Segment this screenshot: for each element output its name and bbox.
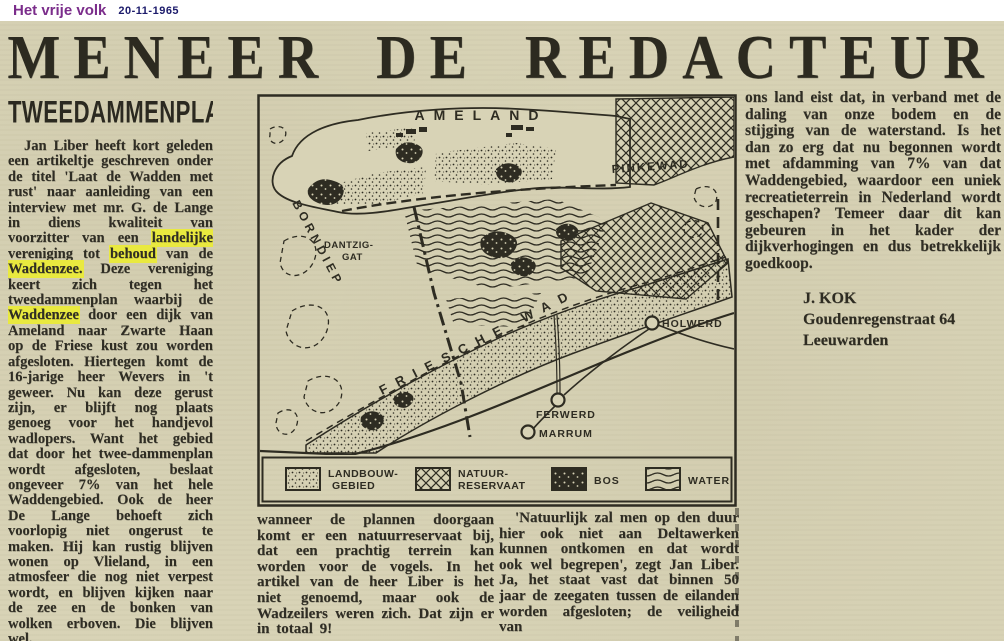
clipping-date: 20-11-1965 <box>118 5 179 17</box>
search-highlight: Waddenzee. <box>8 261 83 277</box>
legend-label: GEBIED <box>332 480 375 492</box>
masthead-bar: Het vrije volk 20-11-1965 <box>0 0 1004 21</box>
map-drawing: AMELAND PINKEWAD BORNDIEP DANTZIG- GAT F… <box>260 97 734 455</box>
page-headline: MENEER DE REDACTEUR <box>0 22 1004 94</box>
map-label-holwerd: HOLWERD <box>662 318 723 330</box>
article-paragraph-bottom-left: wanneer de plannen doorgaan komt er een … <box>257 513 494 638</box>
legend-label: WATER <box>688 475 730 487</box>
paper-name-link[interactable]: Het vrije volk <box>13 2 106 19</box>
legend-label: LANDBOUW- <box>328 468 398 480</box>
legend-swatch-natuurreservaat <box>416 468 450 490</box>
map-label-dantziggat-line2: GAT <box>342 252 363 263</box>
search-highlight: landelijke <box>152 230 213 246</box>
signature-street: Goudenregenstraat 64 <box>803 309 1001 330</box>
signature-block: J. KOK Goudenregenstraat 64 Leeuwarden <box>803 288 1001 351</box>
article-column-right: ons land eist dat, in verband met de dal… <box>745 90 1001 390</box>
article-paragraph-right: ons land eist dat, in verband met de dal… <box>745 90 1001 273</box>
map-figure: AMELAND PINKEWAD BORNDIEP DANTZIG- GAT F… <box>256 93 738 508</box>
paragraph-text: van de <box>156 246 213 262</box>
legend-swatch-bos <box>552 468 586 490</box>
map-legend: LANDBOUW- GEBIED NATUUR- RESERVAAT BOS W… <box>263 458 732 502</box>
ameland-island <box>273 108 630 214</box>
map-label-ferwerd: FERWERD <box>536 409 596 421</box>
legend-label: BOS <box>594 475 620 487</box>
legend-label: RESERVAAT <box>458 480 526 492</box>
legend-swatch-landbouw <box>286 468 320 490</box>
signature-city: Leeuwarden <box>803 330 1001 351</box>
legend-swatch-water <box>646 468 680 490</box>
legend-item-natuurreservaat: NATUUR- RESERVAAT <box>416 468 526 492</box>
search-highlight: Waddenzee <box>8 307 79 323</box>
article-column-bottom-left: wanneer de plannen doorgaan komt er een … <box>257 513 494 641</box>
legend-item-bos: BOS <box>552 468 620 490</box>
paragraph-text: vereniging tot <box>8 246 110 262</box>
legend-label: NATUUR- <box>458 468 509 480</box>
town-marker-holwerd <box>646 317 659 330</box>
legend-item-landbouw: LANDBOUW- GEBIED <box>286 468 398 492</box>
map-label-marrum: MARRUM <box>539 428 593 440</box>
paragraph-text: door een dijk van Ameland naar Zwarte Ha… <box>8 307 213 641</box>
town-marker-marrum <box>522 426 535 439</box>
legend-item-water: WATER <box>646 468 730 490</box>
map-label-dantziggat-line1: DANTZIG- <box>324 240 373 251</box>
search-highlight: behoud <box>110 246 156 262</box>
newspaper-page: Het vrije volk 20-11-1965 MENEER DE REDA… <box>0 0 1004 641</box>
signature-name: J. KOK <box>803 288 1001 309</box>
town-marker-ferwerd <box>552 394 565 407</box>
map-label-ameland: AMELAND <box>415 107 548 123</box>
article-column-left: TWEEDAMMENPLAN Jan Liber heeft kort gele… <box>8 94 213 641</box>
article-paragraph-bottom-right: 'Natuurlijk zal men op den duur hier ook… <box>499 511 739 636</box>
wadden-map: AMELAND PINKEWAD BORNDIEP DANTZIG- GAT F… <box>256 93 738 508</box>
paper-fold-shadow <box>735 508 739 641</box>
article-title: TWEEDAMMENPLAN <box>8 94 176 131</box>
article-column-bottom-right: 'Natuurlijk zal men op den duur hier ook… <box>499 511 739 641</box>
article-paragraph-1: Jan Liber heeft kort geleden een artikel… <box>8 139 213 641</box>
